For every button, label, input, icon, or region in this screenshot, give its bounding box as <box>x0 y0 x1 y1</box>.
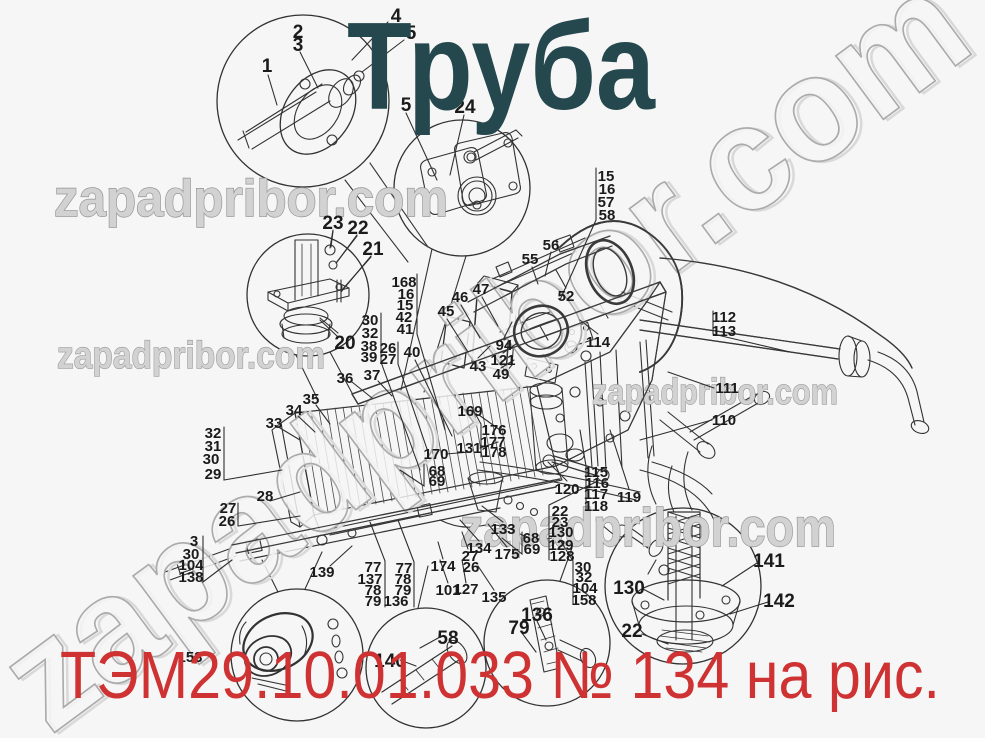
svg-text:40: 40 <box>404 344 421 361</box>
svg-text:49: 49 <box>493 366 510 383</box>
svg-text:39: 39 <box>361 349 378 366</box>
svg-text:79: 79 <box>365 593 382 610</box>
svg-text:178: 178 <box>481 444 506 461</box>
svg-text:21: 21 <box>362 239 384 260</box>
svg-text:138: 138 <box>178 569 203 586</box>
svg-text:127: 127 <box>453 581 478 598</box>
svg-text:34: 34 <box>286 402 303 419</box>
svg-text:36: 36 <box>337 370 354 387</box>
svg-text:114: 114 <box>586 334 611 351</box>
svg-text:23: 23 <box>322 213 343 234</box>
svg-text:110: 110 <box>712 412 736 429</box>
svg-text:69: 69 <box>524 541 541 558</box>
svg-text:33: 33 <box>266 415 283 432</box>
svg-text:133: 133 <box>490 521 515 538</box>
svg-text:113: 113 <box>712 323 736 340</box>
svg-text:zapadpribor.com: zapadpribor.com <box>54 170 448 228</box>
svg-text:zapadpribor.com: zapadpribor.com <box>57 335 325 377</box>
svg-text:45: 45 <box>438 303 455 320</box>
svg-text:55: 55 <box>522 251 539 268</box>
svg-text:26: 26 <box>219 513 236 530</box>
svg-text:35: 35 <box>303 391 320 408</box>
svg-text:52: 52 <box>558 288 575 305</box>
svg-text:37: 37 <box>364 367 381 384</box>
svg-text:139: 139 <box>309 564 334 581</box>
svg-text:ТЭМ29.10.01.033 № 134 на рис.: ТЭМ29.10.01.033 № 134 на рис. <box>60 638 940 713</box>
svg-text:141: 141 <box>753 551 785 572</box>
svg-text:41: 41 <box>397 321 414 338</box>
svg-text:169: 169 <box>457 403 482 420</box>
svg-text:135: 135 <box>481 589 506 606</box>
svg-text:26: 26 <box>463 559 480 576</box>
svg-text:118: 118 <box>584 498 608 515</box>
svg-text:142: 142 <box>763 591 795 612</box>
svg-text:111: 111 <box>715 380 738 397</box>
svg-text:27: 27 <box>380 351 397 368</box>
svg-text:69: 69 <box>429 473 446 490</box>
svg-text:47: 47 <box>473 281 490 298</box>
svg-text:79: 79 <box>508 618 529 639</box>
svg-text:Труба: Труба <box>347 0 656 136</box>
svg-text:158: 158 <box>571 592 596 609</box>
svg-text:43: 43 <box>470 358 487 375</box>
svg-text:130: 130 <box>613 578 645 599</box>
svg-text:3: 3 <box>293 35 304 56</box>
svg-text:58: 58 <box>599 207 616 224</box>
svg-text:174: 174 <box>430 558 456 575</box>
svg-text:1: 1 <box>262 56 273 77</box>
svg-text:128: 128 <box>549 548 574 565</box>
svg-text:119: 119 <box>617 489 641 506</box>
svg-text:170: 170 <box>423 446 448 463</box>
svg-text:56: 56 <box>543 237 560 254</box>
svg-text:136: 136 <box>383 593 408 610</box>
svg-text:22: 22 <box>347 218 368 239</box>
svg-text:131: 131 <box>456 440 481 457</box>
svg-text:28: 28 <box>257 488 274 505</box>
svg-text:120: 120 <box>554 481 579 498</box>
svg-text:29: 29 <box>205 466 222 483</box>
svg-text:20: 20 <box>334 333 355 354</box>
svg-text:175: 175 <box>494 546 519 563</box>
